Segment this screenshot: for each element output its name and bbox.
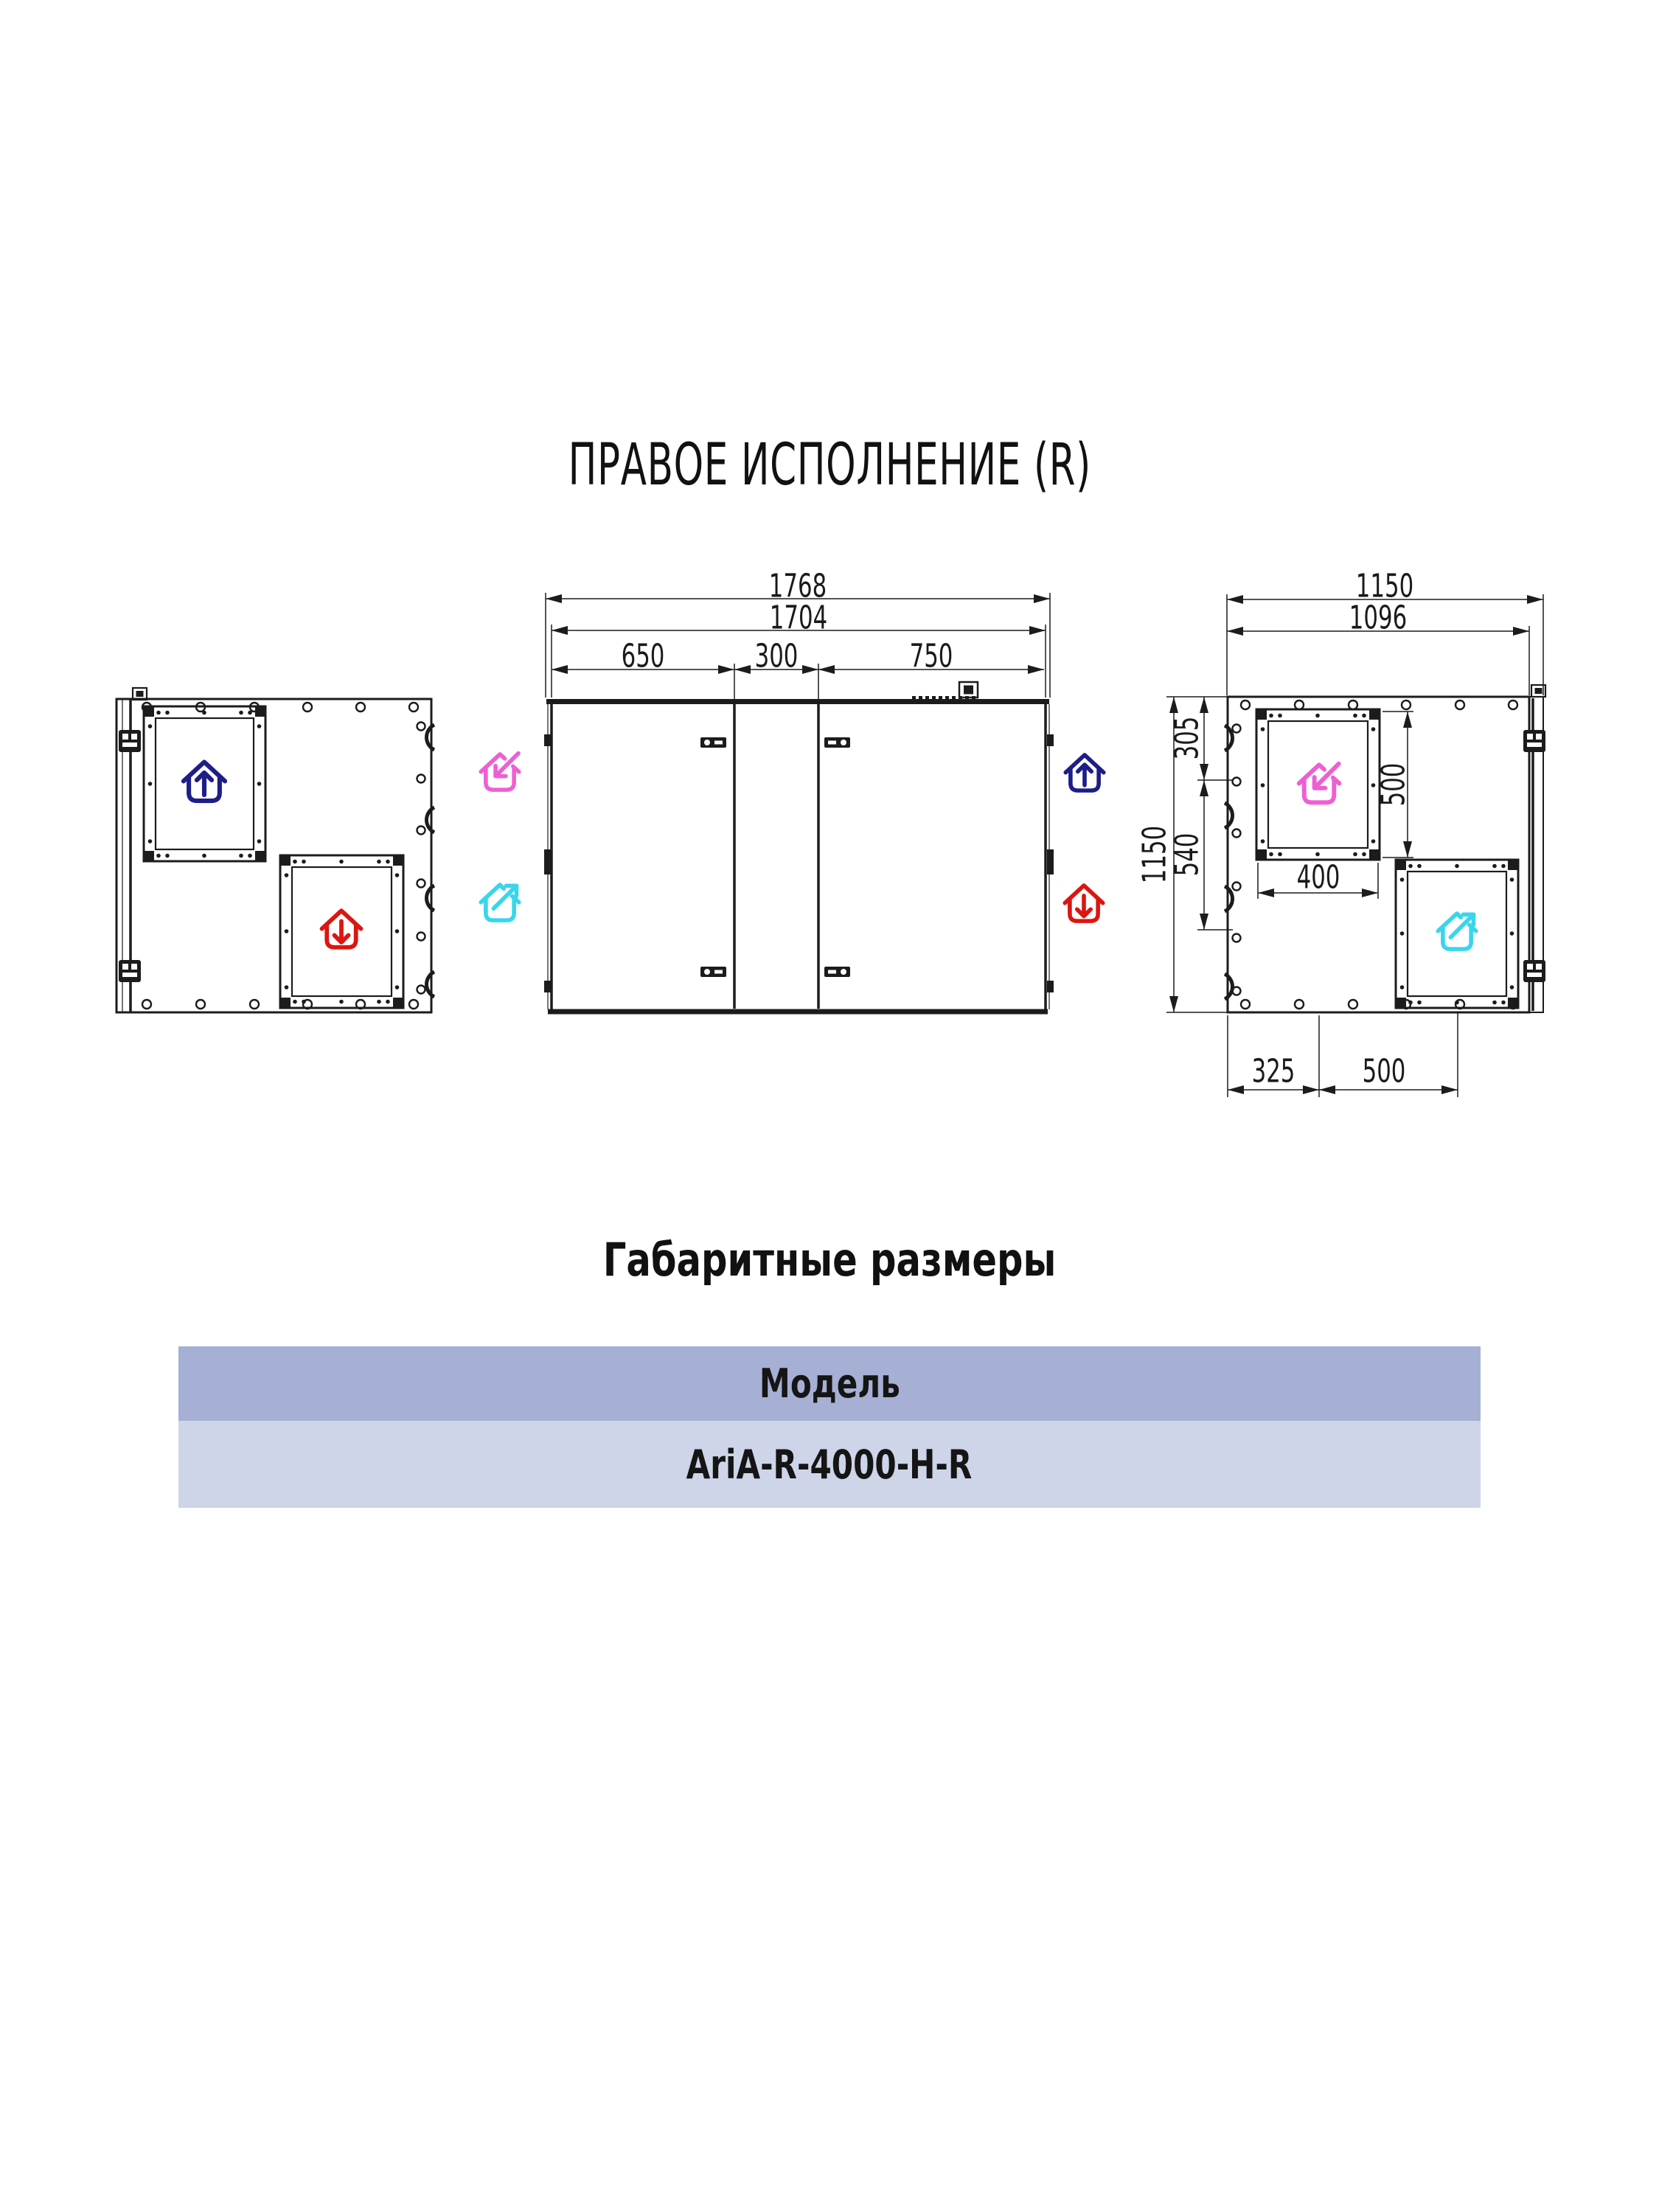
dimension-lines [1169,595,1543,1094]
table-header-text: Модель [759,1360,900,1407]
house-arrow-up-icon [184,762,225,801]
hinge [1523,960,1545,982]
dim-label-middle-offset: 540 [1169,833,1206,877]
page-title: ПРАВОЕ ИСПОЛНЕНИЕ (R) [0,432,1659,498]
dim-label-section-right: 750 [910,638,953,675]
section-heading-text: Габаритные размеры [603,1233,1057,1287]
dim-label-bottom-offset: 325 [1252,1053,1295,1091]
page-title-text: ПРАВОЕ ИСПОЛНЕНИЕ (R) [568,432,1091,498]
door-latch [700,737,726,748]
right-side-view [1166,594,1545,1097]
left-side-view [116,688,434,1012]
section-heading: Габаритные размеры [0,1233,1659,1287]
dim-label-body-depth: 1096 [1349,599,1407,637]
dim-label-bottom-opening-width: 500 [1363,1053,1406,1091]
extension-lines [1166,594,1543,1097]
door-latch [824,967,850,977]
dim-label-body-width: 1704 [770,599,827,637]
house-arrow-down-icon [321,911,361,947]
table-header-cell: Модель [178,1346,1481,1421]
house-arrow-down-icon [1065,886,1102,921]
hinge [119,730,141,752]
technical-drawing [0,560,1659,1135]
dim-label-opening-height: 500 [1375,763,1413,807]
table-value-cell: AriA-R-4000-H-R [178,1421,1481,1508]
door-latch [824,737,850,748]
dim-label-section-middle: 300 [755,638,799,675]
house-arrow-out-icon [1438,914,1475,949]
dim-label-top-offset: 305 [1169,717,1206,760]
dim-label-opening-width: 400 [1297,859,1340,897]
house-arrow-up-icon [1065,755,1103,790]
house-arrow-in-icon [1299,764,1340,803]
hinge [1523,730,1545,752]
house-arrow-in-icon [481,754,518,790]
door-latch [700,967,726,977]
house-arrow-out-icon [481,885,518,920]
hinge [119,960,141,982]
table-model-text: AriA-R-4000-H-R [686,1441,973,1488]
model-table: Модель AriA-R-4000-H-R [178,1346,1481,1508]
top-terminal-block [912,682,978,698]
side-flanges [544,704,1054,1009]
drawing-page: ПРАВОЕ ИСПОЛНЕНИЕ (R) [0,0,1659,2212]
dim-label-overall-height: 1150 [1136,826,1174,883]
dim-label-section-left: 650 [622,638,665,675]
